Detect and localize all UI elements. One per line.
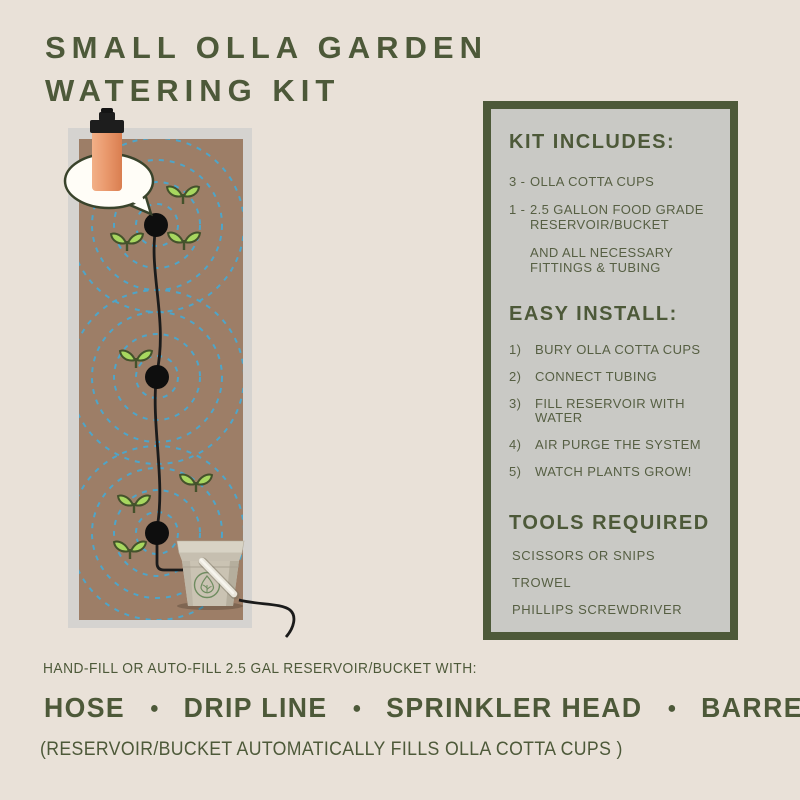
- fill-method: HOSE: [44, 692, 125, 723]
- page-title: SMALL OLLA GARDEN WATERING KIT: [45, 26, 488, 112]
- item-qty: [509, 245, 530, 275]
- list-item: 1) BURY OLLA COTTA CUPS: [509, 343, 720, 357]
- step-text: AIR PURGE THE SYSTEM: [535, 438, 701, 452]
- buried-olla-dot: [145, 521, 169, 545]
- step-text: WATCH PLANTS GROW!: [535, 465, 692, 479]
- step-number: 1): [509, 343, 535, 357]
- step-number: 3): [509, 397, 535, 425]
- step-number: 2): [509, 370, 535, 384]
- step-number: 4): [509, 438, 535, 452]
- step-number: 5): [509, 465, 535, 479]
- kit-includes-section: KIT INCLUDES: 3 - OLLA COTTA CUPS 1 - 2.…: [509, 131, 720, 275]
- info-panel: KIT INCLUDES: 3 - OLLA COTTA CUPS 1 - 2.…: [483, 101, 738, 640]
- easy-install-section: EASY INSTALL: 1) BURY OLLA COTTA CUPS 2)…: [509, 303, 720, 479]
- buried-olla-dot: [144, 213, 168, 237]
- step-text: FILL RESERVOIR WITH WATER: [535, 397, 720, 425]
- item-text: AND ALL NECESSARY FITTINGS & TUBING: [530, 245, 673, 275]
- fill-method: BARREL: [701, 692, 800, 723]
- buried-olla-dot: [145, 365, 169, 389]
- list-item: 2) CONNECT TUBING: [509, 370, 720, 384]
- bullet-separator: ●: [667, 700, 676, 717]
- list-item: PHILLIPS SCREWDRIVER: [509, 603, 720, 617]
- item-qty: 3 -: [509, 174, 530, 189]
- list-item: 3) FILL RESERVOIR WITH WATER: [509, 397, 720, 425]
- easy-install-heading: EASY INSTALL:: [509, 303, 720, 326]
- fill-method: SPRINKLER HEAD: [386, 692, 642, 723]
- fill-methods-row: HOSE●DRIP LINE●SPRINKLER HEAD●BARREL: [44, 692, 800, 724]
- list-item: TROWEL: [509, 576, 720, 590]
- step-text: BURY OLLA COTTA CUPS: [535, 343, 701, 357]
- list-item: 5) WATCH PLANTS GROW!: [509, 465, 720, 479]
- list-item: 1 - 2.5 GALLON FOOD GRADE RESERVOIR/BUCK…: [509, 202, 720, 232]
- poster: SMALL OLLA GARDEN WATERING KIT KIT INCLU…: [0, 0, 800, 800]
- list-item: AND ALL NECESSARY FITTINGS & TUBING: [509, 245, 720, 275]
- list-item: 4) AIR PURGE THE SYSTEM: [509, 438, 720, 452]
- tools-required-heading: TOOLS REQUIRED: [509, 512, 720, 535]
- tools-required-section: TOOLS REQUIRED SCISSORS OR SNIPS TROWEL …: [509, 512, 720, 617]
- bullet-separator: ●: [352, 700, 361, 717]
- step-text: CONNECT TUBING: [535, 370, 657, 384]
- item-text: OLLA COTTA CUPS: [530, 174, 654, 189]
- fill-method: DRIP LINE: [184, 692, 328, 723]
- fill-instructions: HAND-FILL OR AUTO-FILL 2.5 GAL RESERVOIR…: [43, 661, 477, 677]
- olla-cotta-cup-icon: [90, 108, 124, 191]
- item-qty: 1 -: [509, 202, 530, 232]
- item-text: 2.5 GALLON FOOD GRADE RESERVOIR/BUCKET: [530, 202, 704, 232]
- list-item: SCISSORS OR SNIPS: [509, 549, 720, 563]
- kit-includes-heading: KIT INCLUDES:: [509, 131, 720, 154]
- bullet-separator: ●: [150, 700, 159, 717]
- auto-fill-note: (RESERVOIR/BUCKET AUTOMATICALLY FILLS OL…: [40, 739, 623, 761]
- list-item: 3 - OLLA COTTA CUPS: [509, 174, 720, 189]
